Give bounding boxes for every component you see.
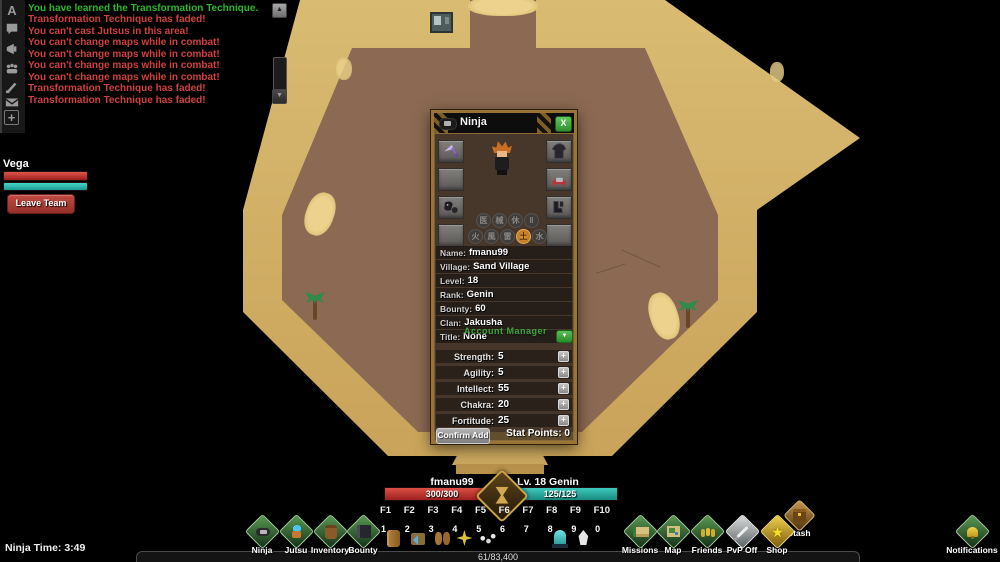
menu-bounty-button[interactable]: Bounty — [328, 516, 398, 555]
stat-label: Chakra: — [436, 400, 494, 410]
menu-notifications-button[interactable]: Notifications — [937, 516, 1000, 555]
team-chat-icon[interactable] — [4, 61, 20, 77]
info-row-level: Level: 18 — [436, 274, 572, 287]
close-window-button[interactable]: X — [555, 116, 572, 132]
fkey-row: F1 F2 F3 F4 F5 F6 F7 F8 F9 F10 — [380, 505, 610, 516]
item-feather-brush — [577, 530, 589, 545]
ninja-time: Ninja Time: 3:49 — [5, 542, 85, 554]
stat-label: Agility: — [436, 368, 494, 378]
headband-icon — [439, 118, 457, 130]
chat-tab-all[interactable]: A — [4, 2, 20, 18]
mail-icon[interactable] — [4, 94, 20, 110]
character-preview-body — [495, 157, 509, 170]
element-water-icon: 水 — [532, 229, 547, 244]
team-member-hp-bar — [3, 171, 88, 181]
stat-label: Fortitude: — [436, 416, 494, 426]
item-senbon — [478, 532, 497, 546]
headband-item-icon — [550, 171, 568, 188]
menu-shop-button[interactable]: ★ Shop — [742, 516, 812, 555]
sand-patch — [770, 62, 784, 82]
chat-scrollbar-thumb[interactable] — [273, 57, 287, 91]
titlebar-stripe — [537, 113, 551, 133]
slot-number: 9 — [571, 524, 576, 534]
hotbar-slot-3[interactable]: 3 — [429, 527, 453, 551]
info-label: Bounty: — [436, 304, 472, 314]
stat-value: 20 — [498, 399, 558, 410]
add-strength-button[interactable]: + — [558, 351, 569, 362]
chat-message: You can't change maps while in combat! — [28, 72, 220, 83]
fkey-label: F1 — [380, 505, 391, 516]
bounty-book-icon — [356, 525, 370, 538]
fkey-label: F6 — [499, 505, 510, 516]
info-value: 18 — [468, 275, 479, 286]
shirt-icon — [550, 143, 568, 160]
hotbar-slot-9[interactable]: 9 — [571, 527, 595, 551]
hotbar-slot-4[interactable]: 4 — [452, 527, 476, 551]
element-lightning-icon: 雷 — [500, 229, 515, 244]
element-weapon-icon: 械 — [492, 213, 507, 228]
hotbar-slot-2[interactable]: 2 — [405, 527, 429, 551]
slot-number: 0 — [595, 524, 600, 534]
character-preview-legs — [497, 170, 507, 175]
slot-number: 1 — [381, 524, 386, 534]
leave-team-button[interactable]: Leave Team — [7, 194, 75, 214]
equip-slot-empty[interactable] — [438, 224, 464, 247]
stat-value: 25 — [498, 415, 558, 426]
chat-bubble-icon[interactable] — [4, 21, 20, 37]
boots-icon — [550, 199, 568, 216]
info-row-rank: Rank: Genin — [436, 288, 572, 301]
fkey-label: F8 — [546, 505, 557, 516]
info-value: fmanu99 — [469, 247, 508, 258]
stat-row-chakra: Chakra: 20 + — [436, 398, 572, 411]
slot-number: 6 — [500, 524, 505, 534]
equip-slot-shirt[interactable] — [546, 140, 572, 163]
item-trap — [411, 533, 425, 545]
equip-slot-empty[interactable] — [546, 224, 572, 247]
item-ghost-charm — [554, 530, 566, 545]
element-fire-icon: 火 — [468, 229, 483, 244]
fkey-label: F4 — [451, 505, 462, 516]
equip-slot-boots[interactable] — [546, 196, 572, 219]
item-shuriken — [456, 530, 472, 546]
slot-number: 3 — [429, 524, 434, 534]
chat-message: Transformation Technique has faded! — [28, 83, 206, 94]
confirm-add-button[interactable]: Confirm Add — [436, 428, 490, 444]
stat-row-fortitude: Fortitude: 25 + — [436, 414, 572, 427]
fkey-label: F2 — [404, 505, 415, 516]
info-value: 60 — [475, 303, 486, 314]
slot-number: 7 — [524, 524, 529, 534]
stat-points-remaining: Stat Points: 0 — [492, 428, 570, 439]
slot-number: 2 — [405, 524, 410, 534]
chat-message: You have learned the Transformation Tech… — [28, 3, 258, 14]
item-hotbar: 1 2 3 4 5 6 7 8 9 0 — [381, 527, 619, 551]
element-wind-icon: 風 — [484, 229, 499, 244]
notifications-bell-icon — [967, 527, 978, 537]
sand-patch — [336, 58, 352, 80]
element-other-icon: ‖ — [524, 213, 539, 228]
hotbar-slot-8[interactable]: 8 — [548, 527, 572, 551]
add-chat-tab-icon[interactable]: + — [4, 110, 19, 125]
fkey-label: F7 — [522, 505, 533, 516]
fkey-label: F5 — [475, 505, 486, 516]
ninja-window: Ninja X 医 械 休 ‖ 火 風 雷 — [431, 110, 577, 444]
fkey-label: F9 — [570, 505, 581, 516]
shop-star-icon: ★ — [771, 525, 784, 539]
info-row-bounty: Bounty: 60 — [436, 302, 572, 315]
info-row-name: Name: fmanu99 — [436, 246, 572, 259]
window-title: Ninja — [460, 116, 487, 128]
pants-icon — [442, 199, 460, 216]
game-screen: A + You have learned the Transformation … — [0, 0, 1000, 562]
info-value: Genin — [467, 289, 494, 300]
chat-scroll-up-button[interactable]: ▲ — [272, 3, 287, 18]
chat-message: You can't change maps while in combat! — [28, 37, 220, 48]
info-label: Village: — [436, 262, 470, 272]
stat-row-agility: Agility: 5 + — [436, 366, 572, 379]
item-pouches — [435, 532, 442, 545]
hotbar-slot-5[interactable]: 5 — [476, 527, 500, 551]
chat-message: Transformation Technique has faded! — [28, 14, 206, 25]
hotbar-slot-7[interactable]: 7 — [524, 527, 548, 551]
element-earth-icon-active: 土 — [516, 229, 531, 244]
chat-scroll-down-button[interactable]: ▼ — [272, 89, 287, 104]
team-member-chakra-bar — [3, 182, 88, 191]
equip-slot-empty[interactable] — [438, 168, 464, 191]
equip-slot-weapon[interactable] — [438, 140, 464, 163]
info-label: Level: — [436, 276, 465, 286]
chat-message: You can't change maps while in combat! — [28, 60, 220, 71]
add-agility-button[interactable]: + — [558, 367, 569, 378]
info-row-village: Village: Sand Village — [436, 260, 572, 273]
fkey-label: F10 — [594, 505, 610, 516]
title-dropdown-button[interactable]: ▼ — [556, 330, 573, 343]
stat-value: 5 — [498, 367, 558, 378]
equip-slot-pants[interactable] — [438, 196, 464, 219]
stat-value: 5 — [498, 351, 558, 362]
add-chakra-button[interactable]: + — [558, 399, 569, 410]
add-fortitude-button[interactable]: + — [558, 415, 569, 426]
add-intellect-button[interactable]: + — [558, 383, 569, 394]
equip-slot-headband[interactable] — [546, 168, 572, 191]
info-label: Clan: — [436, 318, 461, 328]
hotbar-slot-6[interactable]: 6 — [500, 527, 524, 551]
stat-label: Intellect: — [436, 384, 494, 394]
info-label: Rank: — [436, 290, 464, 300]
element-taijutsu-icon: 休 — [508, 213, 523, 228]
stat-label: Strength: — [436, 352, 494, 362]
announcement-megaphone-icon[interactable] — [4, 41, 20, 57]
element-medical-icon: 医 — [476, 213, 491, 228]
menu-label: Notifications — [937, 545, 1000, 555]
info-label: Title: — [436, 332, 460, 342]
south-entrance — [452, 443, 548, 465]
kunai-icon — [442, 143, 460, 160]
wall-sign — [430, 12, 453, 33]
team-member-name: Vega — [3, 158, 29, 170]
chat-message: You can't cast Jutsus in this area! — [28, 26, 189, 37]
info-value: Sand Village — [473, 261, 529, 272]
npc-name-account-manager: Account Manager — [464, 326, 547, 336]
chat-message: You can't change maps while in combat! — [28, 49, 220, 60]
stat-row-intellect: Intellect: 55 + — [436, 382, 572, 395]
slot-number: 8 — [548, 524, 553, 534]
combat-sword-icon[interactable] — [4, 79, 20, 95]
chat-message: Transformation Technique has faded! — [28, 95, 206, 106]
stat-value: 55 — [498, 383, 558, 394]
hourglass-icon — [496, 487, 509, 504]
info-label: Name: — [436, 248, 466, 258]
fkey-label: F3 — [427, 505, 438, 516]
stat-row-strength: Strength: 5 + — [436, 350, 572, 363]
sand-patch — [468, 0, 538, 16]
slot-number: 4 — [452, 524, 457, 534]
slot-number: 5 — [476, 524, 481, 534]
